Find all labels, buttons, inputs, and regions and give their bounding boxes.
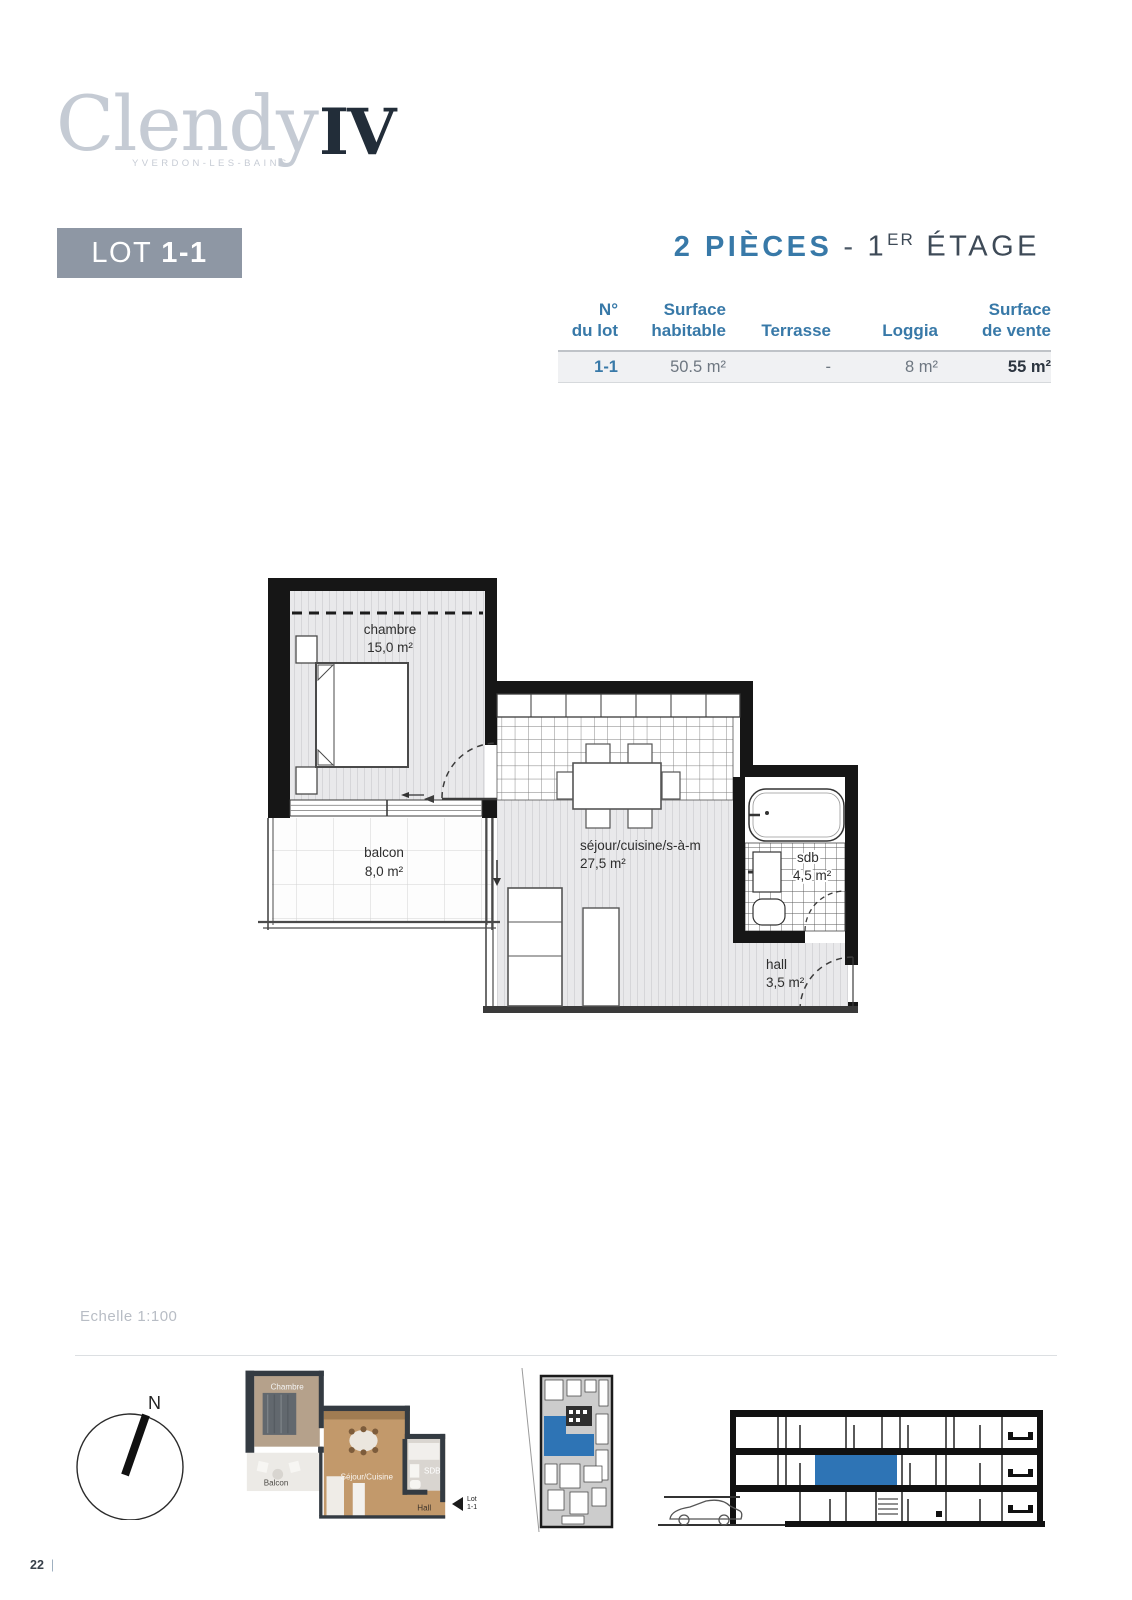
page-heading: 2 PIÈCES - 1ER ÉTAGE — [674, 230, 1040, 264]
brand-suffix: IV — [319, 101, 395, 165]
svg-text:chambre: chambre — [364, 622, 417, 637]
mini-plan-thumbnail: Chambre Balcon Séjour/Cuisine SDB Hall — [240, 1366, 450, 1524]
section-highlight-unit — [815, 1455, 897, 1485]
cell-vente: 55 m² — [938, 358, 1051, 377]
cell-lot: 1-1 — [558, 358, 618, 377]
col-header-terrasse: Terrasse — [726, 320, 831, 341]
svg-text:séjour/cuisine/s-à-m: séjour/cuisine/s-à-m — [580, 838, 701, 853]
svg-text:8,0 m²: 8,0 m² — [365, 864, 404, 879]
car-icon — [658, 1497, 785, 1525]
brand-logo: Clendy IV YVERDON-LES-BAINS — [56, 86, 395, 169]
page-footer: 22| — [30, 1558, 54, 1572]
heading-separator: - — [843, 231, 856, 264]
cell-habitable: 50.5 m² — [618, 358, 726, 377]
table-row: 1-1 50.5 m² - 8 m² 55 m² — [558, 350, 1051, 383]
lot-badge: LOT 1-1 — [57, 228, 242, 278]
svg-text:N: N — [148, 1393, 161, 1413]
floor-plan: chambre 15,0 m² balcon 8,0 m² séjour/cui… — [250, 560, 870, 1030]
mini-plan-lot-tag: Lot1-1 — [452, 1496, 477, 1512]
lot-badge-label: LOT — [91, 237, 152, 270]
heading-floor: 1ER ÉTAGE — [868, 230, 1040, 264]
svg-text:hall: hall — [766, 957, 787, 972]
cell-terrasse: - — [726, 358, 831, 377]
horizontal-divider — [75, 1355, 1057, 1356]
svg-text:Hall: Hall — [417, 1504, 431, 1513]
bathtub — [749, 789, 844, 841]
compass-icon: N — [68, 1365, 198, 1520]
kitchen-cabinets — [497, 694, 740, 717]
mini-plan-floors — [247, 1372, 445, 1518]
svg-text:Chambre: Chambre — [271, 1383, 305, 1392]
col-header-lot: N°du lot — [558, 299, 618, 341]
section-stairs — [878, 1499, 942, 1517]
col-header-loggia: Loggia — [831, 320, 938, 341]
svg-text:Séjour/Cuisine: Séjour/Cuisine — [341, 1472, 394, 1481]
building-section-thumbnail — [650, 1385, 1054, 1537]
svg-text:balcon: balcon — [364, 845, 404, 860]
surface-table-header: N°du lot Surfacehabitable Terrasse Loggi… — [558, 299, 1051, 350]
svg-text:Balcon: Balcon — [264, 1478, 289, 1487]
section-balcony-furniture — [1008, 1432, 1033, 1513]
cell-loggia: 8 m² — [831, 358, 938, 377]
svg-text:27,5 m²: 27,5 m² — [580, 856, 626, 871]
surface-table: N°du lot Surfacehabitable Terrasse Loggi… — [558, 299, 1051, 383]
sink — [748, 852, 781, 892]
svg-text:4,5 m²: 4,5 m² — [793, 868, 832, 883]
svg-text:15,0 m²: 15,0 m² — [367, 640, 413, 655]
lot-badge-number: 1-1 — [161, 237, 207, 270]
brochure-page: Clendy IV YVERDON-LES-BAINS LOT 1-1 2 PI… — [0, 0, 1132, 1600]
arrow-left-icon — [452, 1497, 463, 1511]
col-header-habitable: Surfacehabitable — [618, 299, 726, 341]
brand-name: Clendy — [56, 86, 318, 162]
svg-text:sdb: sdb — [797, 850, 819, 865]
svg-text:SDB: SDB — [424, 1467, 441, 1476]
scale-note: Echelle 1:100 — [80, 1308, 177, 1325]
toilet — [753, 899, 785, 925]
col-header-vente: Surfacede vente — [938, 299, 1051, 341]
heading-rooms: 2 PIÈCES — [674, 231, 833, 264]
page-number: 22 — [30, 1558, 44, 1572]
key-plan-thumbnail — [500, 1364, 615, 1534]
svg-text:3,5 m²: 3,5 m² — [766, 975, 805, 990]
